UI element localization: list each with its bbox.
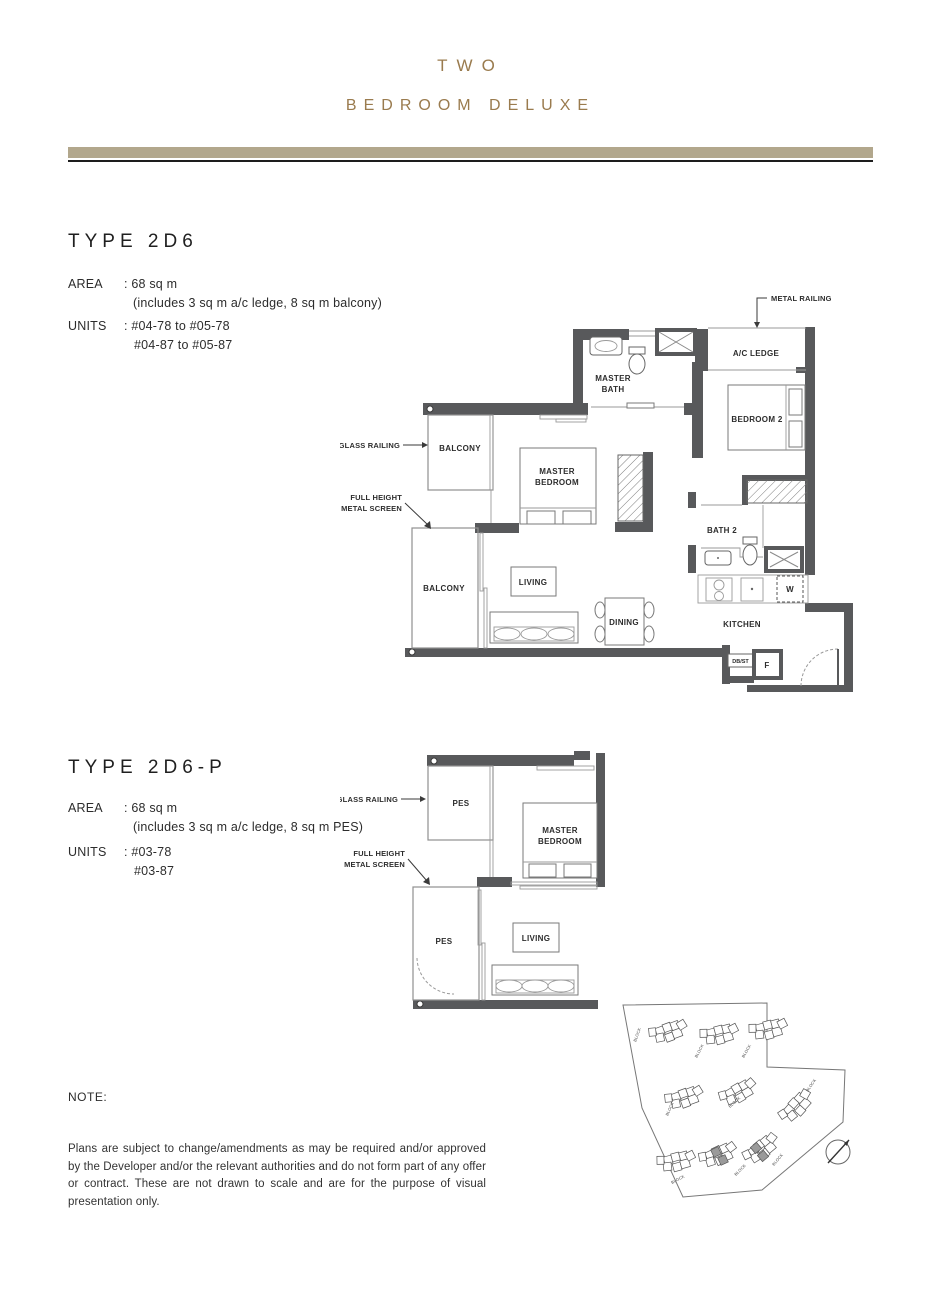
- label-pes-lower: PES: [436, 937, 453, 946]
- label-master-bedroom-p1: MASTER: [542, 826, 578, 835]
- label-bedroom2: BEDROOM 2: [731, 415, 782, 424]
- type-2d6p-heading: TYPE 2D6-P: [68, 757, 227, 779]
- site-key-plan: BLOCK BLOCK BLOCK BLOCK BLOCK BLOCK BLOC…: [615, 995, 870, 1210]
- floorplan-2d6p: PES MASTER BEDROOM PES LIVING GLASS RAIL…: [340, 745, 610, 1020]
- callout-full-height-screen-p: FULL HEIGHT METAL SCREEN: [344, 849, 430, 885]
- callout-glass-railing: GLASS RAILING: [340, 441, 428, 450]
- units-line2-p: #03-87: [134, 864, 174, 878]
- svg-text:FULL HEIGHT: FULL HEIGHT: [350, 493, 402, 502]
- svg-text:BLOCK: BLOCK: [632, 1027, 642, 1043]
- entry-door-arc: [801, 649, 838, 686]
- label-master-bedroom-1: MASTER: [539, 467, 575, 476]
- label-master-bedroom-p2: BEDROOM: [538, 837, 582, 846]
- svg-text:BLOCK: BLOCK: [670, 1174, 685, 1185]
- callout-glass-railing-p: GLASS RAILING: [340, 795, 426, 804]
- label-kitchen: KITCHEN: [723, 620, 761, 629]
- svg-text:FULL HEIGHT: FULL HEIGHT: [353, 849, 405, 858]
- bath2-fixtures: [705, 537, 802, 571]
- svg-text:BLOCK: BLOCK: [771, 1152, 784, 1166]
- label-balcony-upper: BALCONY: [439, 444, 481, 453]
- label-living-p: LIVING: [522, 934, 550, 943]
- area-value-p: : 68 sq m: [124, 801, 177, 815]
- label-master-bedroom-2: BEDROOM: [535, 478, 579, 487]
- units-label-p: UNITS: [68, 845, 107, 859]
- label-ac-ledge: A/C LEDGE: [733, 349, 780, 358]
- area-label: AREA: [68, 277, 103, 291]
- units-line2: #04-87 to #05-87: [134, 338, 232, 352]
- pes-door-arc: [417, 958, 454, 994]
- area-label-p: AREA: [68, 801, 103, 815]
- callout-full-height-screen: FULL HEIGHT METAL SCREEN: [341, 493, 431, 529]
- area-value: : 68 sq m: [124, 277, 177, 291]
- disclaimer-text: Plans are subject to change/amendments a…: [68, 1141, 486, 1211]
- label-fridge: F: [764, 661, 769, 670]
- master-bath-fixtures: [590, 337, 645, 374]
- svg-text:GLASS RAILING: GLASS RAILING: [340, 795, 398, 804]
- site-block-clusters: [647, 1015, 817, 1176]
- units-line1-p: : #03-78: [124, 845, 171, 859]
- svg-text:METAL RAILING: METAL RAILING: [771, 294, 832, 303]
- brochure-page: TWO BEDROOM DELUXE TYPE 2D6 AREA : 68 sq…: [0, 0, 941, 1296]
- svg-text:BLOCK: BLOCK: [805, 1078, 818, 1093]
- label-pes-upper: PES: [453, 799, 470, 808]
- floorplan-2d6: MASTER BATH A/C LEDGE BEDROOM 2 BALCONY …: [340, 282, 870, 705]
- ac-shaft: [657, 330, 695, 354]
- label-master-bath-2: BATH: [602, 385, 625, 394]
- label-dbst: DB/ST: [732, 659, 749, 665]
- svg-text:BLOCK: BLOCK: [693, 1043, 704, 1058]
- svg-text:GLASS RAILING: GLASS RAILING: [340, 441, 400, 450]
- label-dining: DINING: [609, 618, 639, 627]
- label-master-bath-1: MASTER: [595, 374, 631, 383]
- type-2d6-heading: TYPE 2D6: [68, 231, 198, 253]
- area-note-p: (includes 3 sq m a/c ledge, 8 sq m PES): [133, 820, 363, 834]
- label-living: LIVING: [519, 578, 547, 587]
- label-balcony-lower: BALCONY: [423, 584, 465, 593]
- svg-text:BLOCK: BLOCK: [741, 1043, 753, 1058]
- svg-text:METAL SCREEN: METAL SCREEN: [344, 860, 405, 869]
- header-divider-bar: [68, 147, 873, 158]
- svg-text:BLOCK: BLOCK: [664, 1101, 675, 1116]
- bedroom2-furniture: [728, 385, 807, 503]
- page-title-line1: TWO: [0, 56, 941, 76]
- callout-metal-railing: METAL RAILING: [754, 294, 832, 328]
- svg-text:METAL SCREEN: METAL SCREEN: [341, 504, 402, 513]
- note-label: NOTE:: [68, 1090, 107, 1104]
- north-compass-icon: [826, 1140, 850, 1164]
- header-divider-line: [68, 160, 873, 162]
- label-bath2: BATH 2: [707, 526, 737, 535]
- page-title-line2: BEDROOM DELUXE: [0, 97, 941, 115]
- svg-text:BLOCK: BLOCK: [733, 1163, 747, 1177]
- label-washer: W: [786, 585, 794, 594]
- living-dining-furniture: [490, 567, 654, 645]
- page-title: TWO BEDROOM DELUXE: [0, 56, 941, 115]
- units-line1: : #04-78 to #05-78: [124, 319, 230, 333]
- units-label: UNITS: [68, 319, 107, 333]
- master-wardrobe: [618, 455, 643, 521]
- bedroom2-wardrobe: [747, 480, 807, 503]
